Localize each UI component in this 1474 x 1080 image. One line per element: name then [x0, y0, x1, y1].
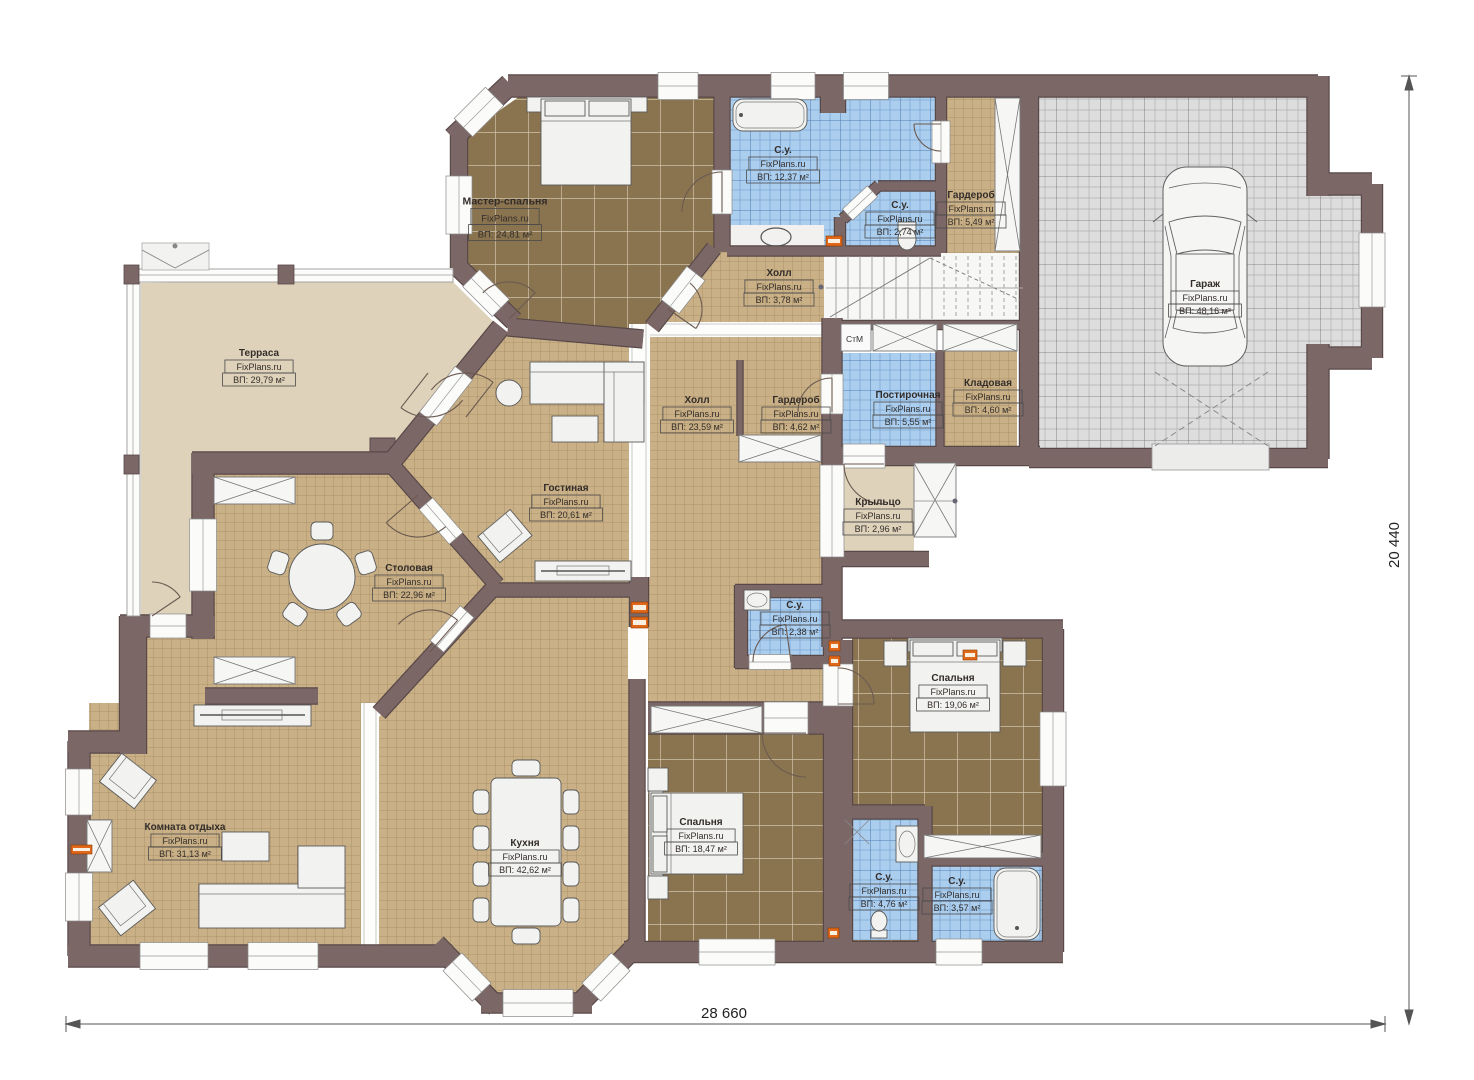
svg-text:20 440: 20 440	[1386, 522, 1403, 568]
svg-text:Терраса: Терраса	[239, 348, 280, 359]
svg-text:ВП: 24,81 м²: ВП: 24,81 м²	[478, 230, 533, 241]
svg-text:FixPlans.ru: FixPlans.ru	[861, 886, 906, 896]
svg-text:Кухня: Кухня	[510, 838, 539, 849]
svg-text:Холл: Холл	[684, 395, 709, 406]
svg-text:FixPlans.ru: FixPlans.ru	[543, 497, 588, 507]
svg-text:FixPlans.ru: FixPlans.ru	[948, 204, 993, 214]
svg-text:FixPlans.ru: FixPlans.ru	[885, 404, 930, 414]
svg-text:С.у.: С.у.	[875, 872, 893, 883]
svg-text:ВП: 23,59 м²: ВП: 23,59 м²	[671, 422, 723, 432]
svg-text:FixPlans.ru: FixPlans.ru	[1182, 293, 1227, 303]
svg-text:ВП: 3,57 м²: ВП: 3,57 м²	[934, 903, 981, 913]
svg-text:ВП: 3,78 м²: ВП: 3,78 м²	[756, 295, 803, 305]
svg-text:ВП: 4,62 м²: ВП: 4,62 м²	[773, 422, 820, 432]
svg-text:ВП: 5,55 м²: ВП: 5,55 м²	[885, 417, 932, 427]
svg-text:ВП: 12,37 м²: ВП: 12,37 м²	[757, 172, 809, 182]
svg-text:С.у.: С.у.	[774, 145, 792, 156]
svg-text:С.у.: С.у.	[891, 200, 909, 211]
svg-text:Кладовая: Кладовая	[964, 378, 1012, 389]
svg-text:ВП: 48,16 м²: ВП: 48,16 м²	[1179, 306, 1231, 316]
svg-text:СтМ: СтМ	[846, 334, 863, 344]
svg-text:ВП: 18,47 м²: ВП: 18,47 м²	[675, 844, 727, 854]
svg-text:Гардероб: Гардероб	[947, 189, 994, 201]
svg-text:С.у.: С.у.	[786, 600, 804, 611]
svg-text:Холл: Холл	[766, 268, 791, 279]
svg-text:Гардероб: Гардероб	[772, 394, 819, 406]
svg-text:FixPlans.ru: FixPlans.ru	[772, 614, 817, 624]
svg-text:ВП: 20,61 м²: ВП: 20,61 м²	[540, 510, 592, 520]
svg-text:28 660: 28 660	[701, 1005, 747, 1022]
svg-text:FixPlans.ru: FixPlans.ru	[930, 687, 975, 697]
svg-text:ВП: 31,13 м²: ВП: 31,13 м²	[159, 849, 211, 859]
svg-text:Столовая: Столовая	[385, 563, 433, 574]
svg-text:ВП: 2,96 м²: ВП: 2,96 м²	[855, 524, 902, 534]
svg-text:FixPlans.ru: FixPlans.ru	[855, 511, 900, 521]
svg-text:С.у.: С.у.	[948, 876, 966, 887]
svg-text:FixPlans.ru: FixPlans.ru	[674, 409, 719, 419]
svg-text:Мастер-спальня: Мастер-спальня	[462, 196, 547, 208]
svg-text:ВП: 22,96 м²: ВП: 22,96 м²	[383, 590, 435, 600]
svg-text:FixPlans.ru: FixPlans.ru	[934, 890, 979, 900]
svg-text:Спальня: Спальня	[931, 673, 974, 684]
svg-text:Постирочная: Постирочная	[876, 390, 941, 401]
svg-text:FixPlans.ru: FixPlans.ru	[502, 852, 547, 862]
svg-text:ВП: 4,76 м²: ВП: 4,76 м²	[861, 899, 908, 909]
svg-text:ВП: 4,60 м²: ВП: 4,60 м²	[965, 405, 1012, 415]
svg-text:Комната отдыха: Комната отдыха	[145, 822, 226, 833]
svg-text:FixPlans.ru: FixPlans.ru	[236, 362, 281, 372]
svg-text:ВП: 42,62 м²: ВП: 42,62 м²	[499, 865, 551, 875]
svg-text:Крыльцо: Крыльцо	[855, 497, 901, 508]
svg-text:FixPlans.ru: FixPlans.ru	[760, 159, 805, 169]
svg-text:ВП: 5,49 м²: ВП: 5,49 м²	[948, 217, 995, 227]
svg-text:FixPlans.ru: FixPlans.ru	[756, 282, 801, 292]
svg-text:FixPlans.ru: FixPlans.ru	[386, 577, 431, 587]
svg-text:FixPlans.ru: FixPlans.ru	[678, 831, 723, 841]
svg-text:FixPlans.ru: FixPlans.ru	[481, 214, 529, 225]
svg-text:ВП: 29,79 м²: ВП: 29,79 м²	[233, 375, 285, 385]
svg-text:FixPlans.ru: FixPlans.ru	[773, 409, 818, 419]
svg-text:FixPlans.ru: FixPlans.ru	[877, 214, 922, 224]
svg-text:ВП: 2,38 м²: ВП: 2,38 м²	[772, 627, 819, 637]
svg-text:ВП: 19,06 м²: ВП: 19,06 м²	[927, 700, 979, 710]
svg-text:Спальня: Спальня	[679, 817, 722, 828]
svg-text:FixPlans.ru: FixPlans.ru	[965, 392, 1010, 402]
svg-text:Гараж: Гараж	[1190, 279, 1221, 290]
svg-text:Гостиная: Гостиная	[543, 483, 588, 494]
svg-text:ВП: 2,74 м²: ВП: 2,74 м²	[877, 227, 924, 237]
svg-text:FixPlans.ru: FixPlans.ru	[162, 836, 207, 846]
